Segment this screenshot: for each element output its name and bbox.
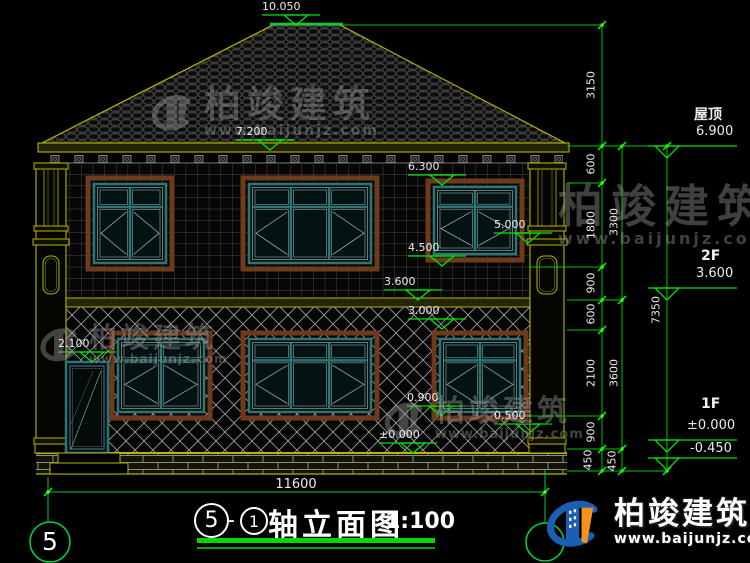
watermark-bottom: 柏竣建筑 www.baijunjz.com	[378, 394, 584, 446]
drawing-scale: 1:100	[385, 509, 455, 534]
company-logo-url: www.baijunjz.com	[614, 530, 750, 550]
watermark-brand: 柏竣建筑	[204, 86, 379, 123]
entry-steps	[50, 453, 128, 474]
title-underline-thin	[197, 547, 435, 549]
watermark-brand: 柏竣建筑	[89, 324, 228, 352]
company-logo-brand: 柏竣建筑	[614, 499, 750, 530]
cad-elevation-canvas: 10.0507.2006.3005.0004.5003.6003.0002.10…	[0, 0, 750, 563]
title-axis-start: 5	[205, 508, 219, 533]
window-2f-right	[428, 181, 522, 260]
watermark-url: www.baijunjz.com	[558, 229, 750, 249]
axis-bubble-left-label: 5	[36, 527, 64, 556]
watermark-left: 柏竣建筑 www.baijunjz.com	[34, 320, 228, 370]
window-2f-center	[243, 178, 377, 269]
watermark-url: www.baijunjz.com	[435, 427, 584, 443]
title-axis-end-bubble: 1	[240, 507, 268, 535]
watermark-brand: 柏竣建筑	[558, 184, 750, 229]
eave-cornice	[38, 143, 569, 163]
title-axis-end: 1	[249, 512, 259, 531]
company-logo: 柏竣建筑 www.baijunjz.com	[538, 489, 750, 559]
brand-logo-icon	[34, 320, 84, 370]
watermark-brand: 柏竣建筑	[435, 397, 584, 427]
watermark-top: 柏竣建筑 www.baijunjz.com	[145, 86, 379, 141]
title-axis-separator: -	[227, 508, 235, 533]
title-underline-thick	[197, 538, 435, 543]
company-logo-icon	[538, 489, 608, 559]
watermark-url: www.baijunjz.com	[204, 123, 379, 141]
window-2f-left	[88, 178, 172, 269]
watermark-right: 柏竣建筑 www.baijunjz.com	[558, 184, 750, 249]
watermark-url: www.baijunjz.com	[89, 352, 228, 367]
window-1f-center	[243, 333, 377, 418]
entry-door	[66, 362, 108, 453]
brand-logo-icon	[378, 394, 430, 446]
title-axis-start-bubble: 5	[194, 503, 229, 538]
brand-logo-icon	[145, 86, 199, 140]
